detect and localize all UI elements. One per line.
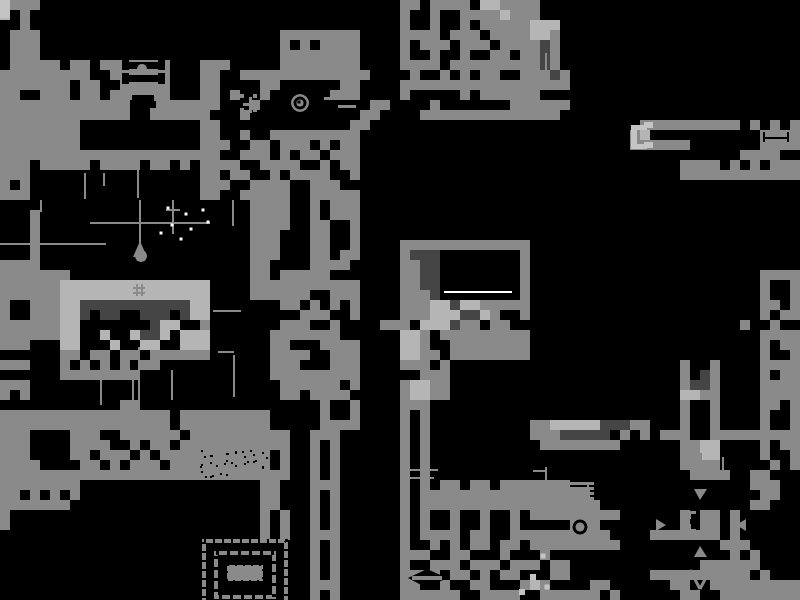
map-viewport — [0, 0, 800, 600]
world-map-canvas — [0, 0, 800, 600]
